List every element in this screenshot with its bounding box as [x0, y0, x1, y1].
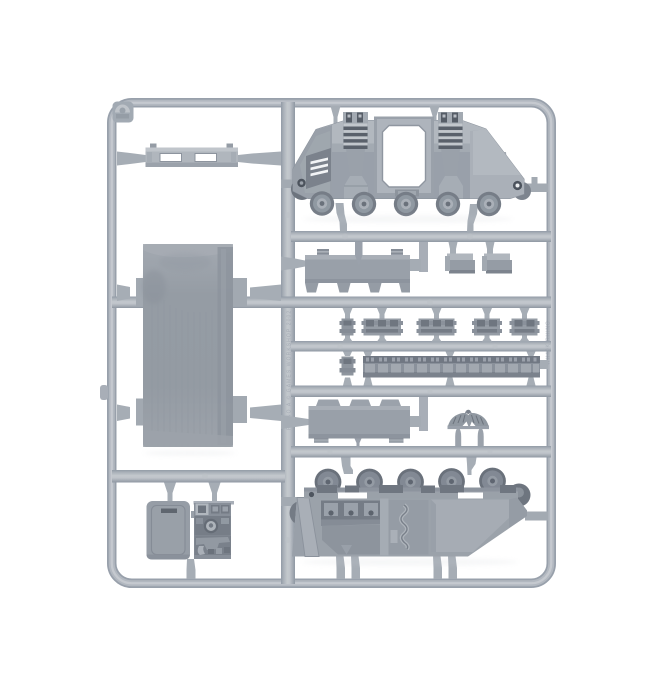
svg-text:RHINO A © GAMES WORKSHOP 2002: RHINO A © GAMES WORKSHOP 2002 [286, 310, 293, 430]
svg-text:WH40K RHINO: WH40K RHINO [546, 320, 552, 365]
